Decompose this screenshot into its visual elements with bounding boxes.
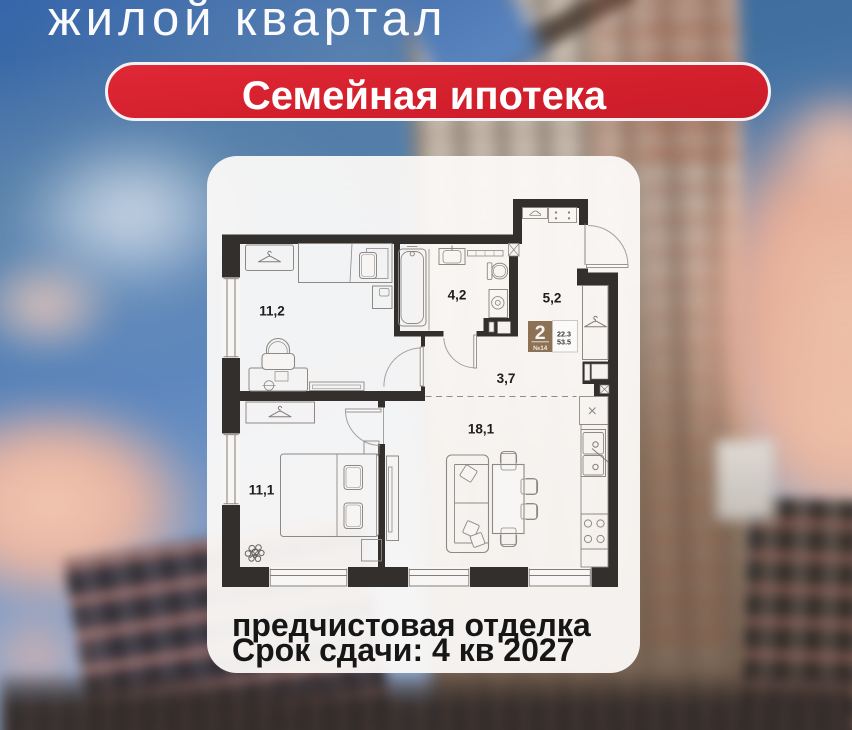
svg-text:11,1: 11,1 xyxy=(249,483,275,498)
svg-text:11,2: 11,2 xyxy=(259,304,285,319)
svg-text:2: 2 xyxy=(535,322,546,344)
svg-text:5,2: 5,2 xyxy=(543,291,562,306)
svg-text:18,1: 18,1 xyxy=(468,422,495,437)
svg-text:53.5: 53.5 xyxy=(557,338,571,347)
svg-text:№14: №14 xyxy=(533,345,548,352)
svg-text:4,2: 4,2 xyxy=(448,288,467,303)
svg-text:3,7: 3,7 xyxy=(497,371,516,386)
